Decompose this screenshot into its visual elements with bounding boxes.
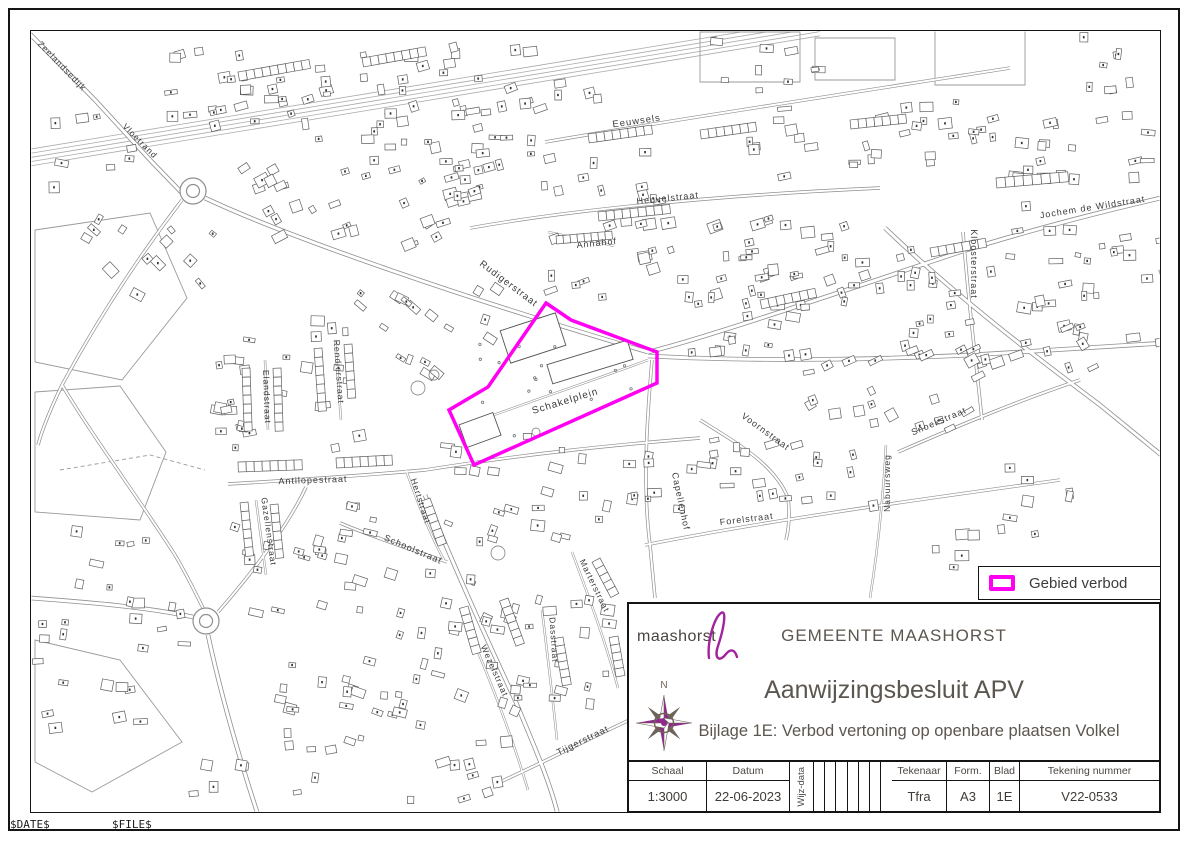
title-block-table: Schaal 1:3000 Datum 22-06-2023 Wijz-data…: [629, 760, 1159, 811]
tekening-nummer-header: Tekening nummer: [1020, 762, 1159, 781]
schaal-column: Schaal 1:3000: [629, 762, 707, 811]
form-column: Form. A3: [947, 762, 990, 811]
legend-box: Gebied verbod: [978, 566, 1161, 600]
blad-value: 1E: [990, 781, 1019, 811]
compass-rose-icon: [631, 690, 697, 756]
datum-header: Datum: [707, 762, 789, 781]
drawing-subtitle: Bijlage 1E: Verbod vertoning op openbare…: [669, 722, 1149, 741]
form-value: A3: [947, 781, 989, 811]
tekenaar-value: Tfra: [892, 781, 946, 811]
prohibition-area-swatch: [989, 575, 1015, 591]
schaal-value: 1:3000: [629, 781, 706, 811]
plot-date-variable: $DATE$: [10, 818, 50, 831]
datum-value: 22-06-2023: [707, 781, 789, 811]
drawing-title: Aanwijzingsbesluit APV: [629, 676, 1159, 705]
blad-header: Blad: [990, 762, 1019, 781]
plot-file-variable: $FILE$: [112, 818, 152, 831]
revision-cells: [814, 762, 892, 811]
title-block: maashorst GEMEENTE MAASHORST Aanwijzings…: [627, 602, 1161, 813]
tekening-nummer-column: Tekening nummer V22-0533: [1020, 762, 1159, 811]
tekenaar-header: Tekenaar: [892, 762, 946, 781]
tekening-nummer-value: V22-0533: [1020, 781, 1159, 811]
municipality-name: GEMEENTE MAASHORST: [629, 626, 1159, 646]
wijz-data-label: Wijz-data: [796, 767, 807, 807]
form-header: Form.: [947, 762, 989, 781]
schaal-header: Schaal: [629, 762, 706, 781]
legend-label: Gebied verbod: [1029, 575, 1127, 592]
datum-column: Datum 22-06-2023: [707, 762, 790, 811]
wijz-data-column: Wijz-data: [790, 762, 814, 811]
blad-column: Blad 1E: [990, 762, 1020, 811]
tekenaar-column: Tekenaar Tfra: [892, 762, 947, 811]
